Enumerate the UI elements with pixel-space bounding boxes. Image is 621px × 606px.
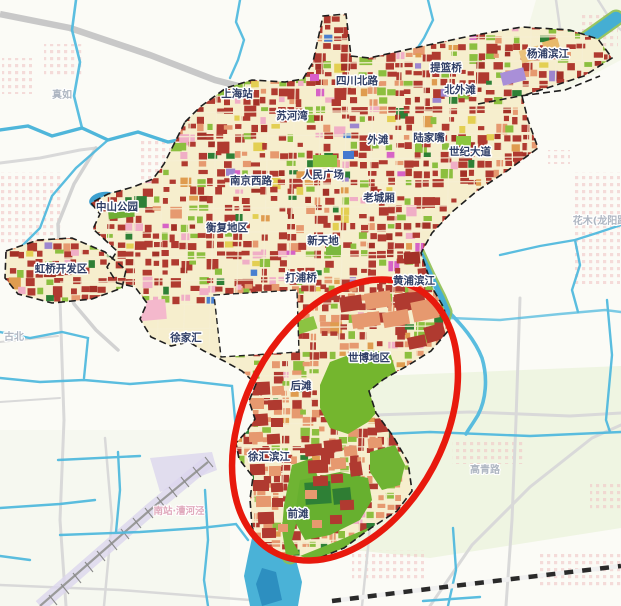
map-label-sichuan-north-road: 四川北路: [336, 74, 378, 87]
map-label-the-bund: 外滩: [367, 133, 389, 146]
map-label-hongqiao-dev-zone: 虹桥开发区: [35, 262, 88, 275]
lujiazui-green: [456, 136, 471, 146]
map-label-hengfu-area: 衡复地区: [206, 221, 248, 234]
map-container: 真如上海站四川北路提篮桥北外滩杨浦滨江苏河湾外滩陆家嘴世纪大道南京西路人民广场中…: [0, 0, 621, 606]
map-label-xujiahui: 徐家汇: [169, 331, 202, 344]
map-label-peoples-square: 人民广场: [302, 168, 344, 181]
map-label-xuhui-riverside: 徐汇滨江: [247, 450, 290, 463]
map-label-south-station-caohejing: 南站·漕河泾: [153, 505, 205, 517]
map-label-zhongshan-park: 中山公园: [96, 200, 138, 213]
map-label-dapuqiao: 打浦桥: [285, 271, 317, 284]
map-label-yangpu-riverside: 杨浦滨江: [527, 47, 569, 60]
map-label-huangpu-riverside: 黄浦滨江: [393, 274, 435, 287]
map-label-nanjing-west-road: 南京西路: [230, 174, 272, 187]
map-label-north-bund: 北外滩: [444, 83, 476, 96]
map-label-gubei: 古北: [4, 330, 24, 343]
map-label-century-avenue: 世纪大道: [449, 145, 491, 158]
map-label-tilanqiao: 提篮桥: [430, 61, 462, 74]
map-label-suhewan: 苏河湾: [276, 109, 308, 122]
peoples-park-green: [313, 155, 337, 167]
map-label-shanghai-station: 上海站: [221, 87, 253, 100]
map-label-qiantan: 前滩: [288, 507, 309, 520]
map-label-houtan: 后滩: [291, 379, 312, 392]
map-label-xintiandi: 新天地: [307, 234, 339, 247]
map-label-huamu-longyang: 花木(龙阳路: [573, 214, 621, 227]
map-label-gaoqing-road: 高青路: [470, 463, 501, 476]
map-label-expo-area: 世博地区: [348, 351, 390, 364]
shanghai-planning-map: 真如上海站四川北路提篮桥北外滩杨浦滨江苏河湾外滩陆家嘴世纪大道南京西路人民广场中…: [0, 0, 621, 606]
map-label-zhenru: 真如: [52, 88, 72, 101]
map-label-lujiazui: 陆家嘴: [413, 131, 445, 144]
white-area: [214, 290, 299, 357]
map-label-old-city: 老城厢: [362, 191, 395, 204]
